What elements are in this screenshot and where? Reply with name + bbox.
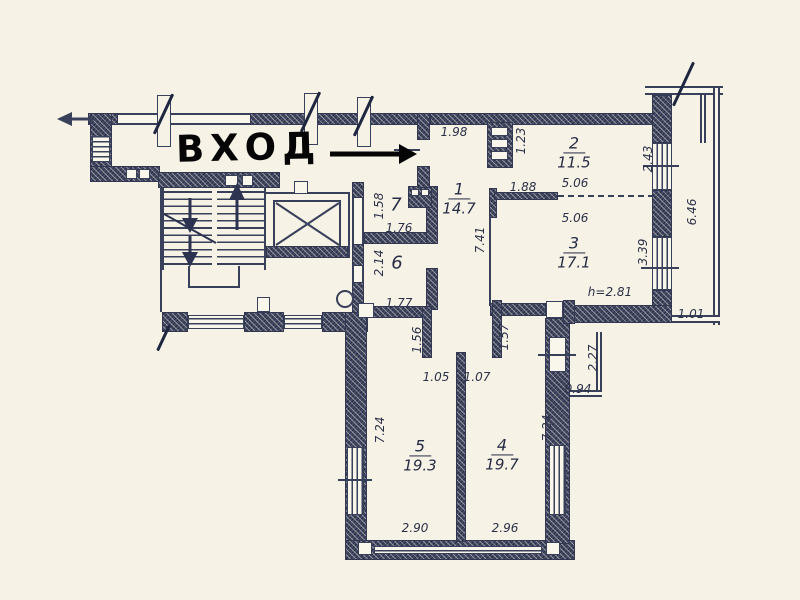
plan-overlay [0, 0, 800, 600]
floor-plan: ВХОД 1 14.7 2 11.5 3 17.1 4 19.7 5 19.3 … [0, 0, 800, 600]
stair-up-arrow-icon [229, 183, 245, 230]
wall-end-arrow-icon [57, 112, 96, 126]
entrance-arrow [330, 144, 417, 164]
stair-down-arrow-icon-2 [182, 236, 198, 267]
elevator-x-icon [276, 203, 339, 245]
entrance-text: ВХОД [175, 124, 321, 171]
